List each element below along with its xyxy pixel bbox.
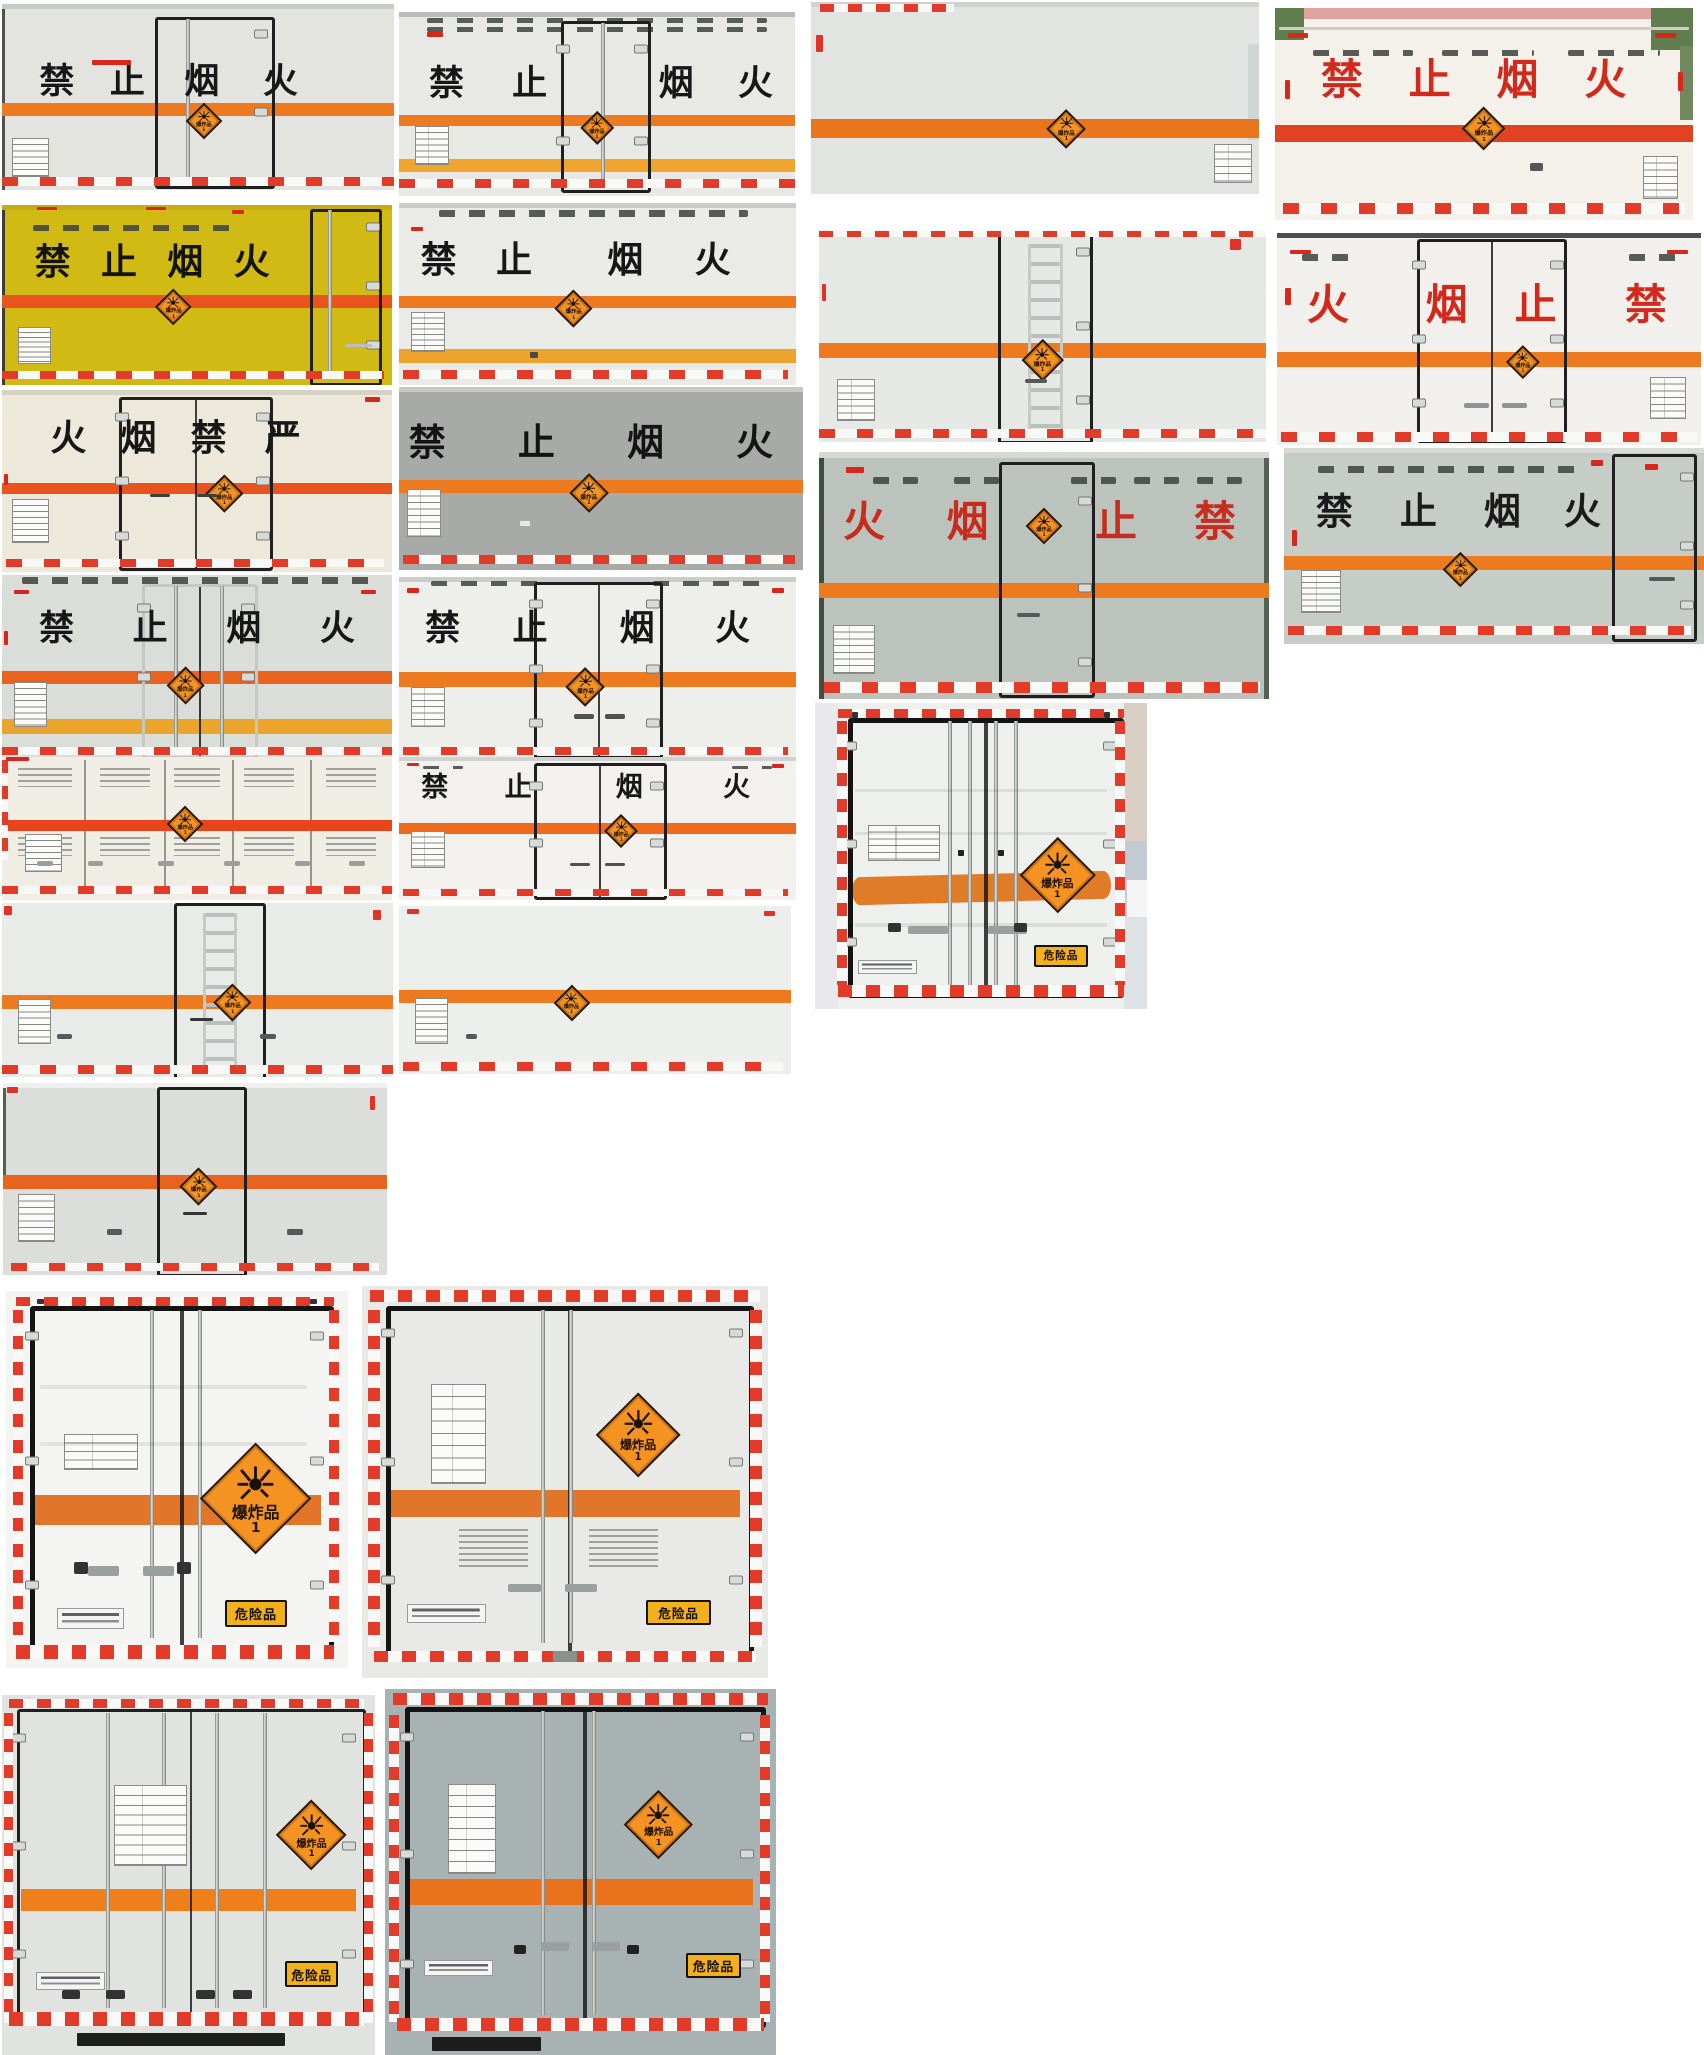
reflective-strip	[403, 1062, 783, 1070]
door-lock-rod	[1014, 721, 1018, 984]
door-lock-rod	[328, 210, 332, 377]
reflective-strip	[2, 1065, 393, 1074]
hinge	[310, 1332, 324, 1341]
photo-box-side-no-fire-white-double-door: 禁止烟火爆炸品1	[399, 577, 796, 760]
hinge	[1412, 335, 1426, 344]
explosion-burst-icon	[622, 1406, 655, 1439]
explosive-placard-icon: 爆炸品1	[553, 985, 590, 1022]
info-plate	[114, 1785, 187, 1866]
door-lock-rod	[263, 1713, 267, 2008]
panel-char: 火	[234, 245, 270, 281]
explosive-placard-icon: 爆炸品1	[185, 103, 222, 140]
door-latch	[565, 1584, 597, 1592]
panel-char: 火	[715, 612, 750, 647]
hinge	[381, 1576, 395, 1585]
placard-content: 爆炸品1	[553, 985, 590, 1022]
hinge	[1078, 497, 1092, 506]
dangerous-goods-plate: 危险品	[285, 1961, 337, 1987]
panel-char: 禁	[421, 243, 457, 279]
louver-slats	[18, 768, 73, 787]
door-latch	[605, 863, 625, 867]
placard-class-number: 1	[620, 838, 623, 843]
placard-content: 爆炸品1	[565, 667, 605, 707]
door-lock-rod	[968, 721, 972, 984]
photo-container-side-plain: 爆炸品1	[399, 906, 791, 1074]
hinge	[529, 838, 543, 847]
explosion-burst-icon	[1059, 115, 1074, 130]
explosive-placard-icon: 爆炸品1	[1506, 345, 1540, 379]
marker	[520, 521, 530, 526]
reflective-strip	[393, 1693, 768, 1706]
hinge	[1078, 583, 1092, 592]
vehicle-model-plate	[407, 1604, 486, 1624]
placard-class-number: 1	[1042, 534, 1045, 539]
vent-louvers	[873, 477, 918, 484]
explosive-placard-icon: 爆炸品1	[1046, 109, 1086, 149]
door-latch	[260, 1034, 276, 1039]
hinge	[1076, 395, 1090, 404]
reflective-strip	[11, 1263, 380, 1271]
explosion-burst-icon	[1037, 514, 1051, 528]
marker	[530, 352, 538, 357]
panel-char: 烟	[627, 424, 664, 461]
door-frame	[310, 209, 382, 385]
warning-stripe	[399, 990, 791, 1003]
info-plate	[411, 831, 445, 867]
reflective-strip	[397, 2018, 765, 2031]
warning-stripe	[399, 349, 796, 364]
panel-char: 火	[1307, 284, 1349, 326]
reflective-strip	[820, 4, 954, 12]
explosive-placard-icon: 爆炸品1	[180, 1167, 218, 1205]
explosion-burst-icon	[298, 1811, 325, 1838]
box-top-rail	[1277, 233, 1701, 238]
marker	[553, 1651, 577, 1663]
hinge	[729, 1458, 743, 1467]
placard-content: 爆炸品1	[569, 473, 609, 513]
door-latch	[88, 1566, 119, 1575]
door-latch	[183, 1212, 206, 1216]
photo-truck-rear-explosive-placard: 爆炸品1危险品	[815, 703, 1147, 1009]
placard-class-number: 1	[231, 1010, 234, 1015]
reflective-strip	[2, 886, 392, 895]
explosive-placard-icon: 爆炸品1	[604, 814, 638, 848]
panel-char: 烟	[946, 501, 988, 543]
marker	[772, 764, 784, 768]
explosive-placard-icon: 爆炸品1	[1025, 508, 1062, 545]
photo-box-side-fire-smoke-banned-gray: 火烟止禁爆炸品1	[819, 452, 1269, 699]
hinge	[241, 672, 255, 681]
panel-char: 烟	[184, 65, 219, 100]
hinge	[1550, 335, 1564, 344]
explosion-burst-icon	[1476, 114, 1493, 131]
door-frame	[1417, 239, 1567, 442]
explosion-burst-icon	[590, 116, 603, 129]
warning-stripe	[811, 119, 1259, 138]
panel-char: 禁	[1194, 501, 1236, 543]
hinge	[740, 1849, 754, 1858]
panel-char: 火	[736, 424, 773, 461]
hinge	[556, 44, 570, 53]
door-latch	[605, 714, 625, 719]
reflective-strip	[4, 1713, 13, 2023]
info-plate	[14, 682, 47, 727]
door-latch	[592, 1942, 619, 1951]
louver-slats	[100, 768, 151, 787]
background-scenery	[1264, 452, 1269, 699]
hinge	[646, 719, 660, 728]
door-latch	[908, 926, 948, 934]
box-top-rail	[399, 757, 796, 761]
background-scenery	[1124, 703, 1147, 841]
reflective-strip	[16, 1645, 334, 1658]
hinge	[400, 1849, 414, 1858]
door-latch	[1530, 163, 1543, 171]
panel-char: 烟	[120, 421, 156, 457]
marker	[958, 850, 965, 856]
photo-container-side-ladder-door-gray: 爆炸品1	[3, 1083, 387, 1275]
door-latch	[345, 344, 372, 348]
box-top-rail	[399, 203, 796, 208]
photo-container-side-corrugated-1: 爆炸品1	[811, 2, 1259, 194]
vehicle-model-plate	[57, 1608, 124, 1629]
panel-char: 烟	[1496, 59, 1538, 101]
marker	[764, 911, 776, 916]
door-latch	[888, 923, 901, 932]
marker	[7, 1087, 19, 1093]
marker	[822, 284, 826, 301]
marker	[146, 207, 166, 211]
panel-char: 火	[50, 421, 86, 457]
door-lock-rod	[150, 1310, 154, 1638]
reflective-strip	[329, 1310, 339, 1642]
marker	[852, 712, 859, 718]
info-plate	[25, 834, 62, 872]
placard-class-number: 1	[1041, 368, 1045, 374]
panel-char: 烟	[659, 67, 694, 102]
panel-char: 禁	[425, 612, 460, 647]
photo-truck-rear-explosive-3: 爆炸品1危险品	[2, 1695, 375, 2055]
marker	[361, 590, 377, 595]
panel-char: 止	[1409, 59, 1451, 101]
door-lock-rod	[106, 1713, 110, 2008]
truck-photo-collage: 禁止烟火爆炸品1禁止烟火爆炸品1爆炸品1禁止烟火爆炸品1禁止烟火爆炸品1禁止烟火…	[0, 0, 1704, 2055]
reflective-strip	[2, 747, 392, 755]
vent-louvers	[954, 477, 999, 484]
photo-truck-rear-explosive-2: 爆炸品1危险品	[362, 1286, 768, 1678]
hinge	[1680, 542, 1694, 551]
panel-char: 烟	[616, 774, 643, 801]
placard-class-number: 1	[656, 1838, 662, 1847]
marker	[6, 757, 29, 761]
door-latch	[107, 1229, 122, 1235]
hinge	[740, 1732, 754, 1741]
hinge	[729, 1329, 743, 1338]
explosion-burst-icon	[581, 480, 596, 495]
hinge	[529, 664, 543, 673]
panel-char: 禁	[409, 424, 446, 461]
hinge	[342, 1734, 356, 1743]
dangerous-goods-plate: 危险品	[225, 1600, 287, 1627]
door-latch	[158, 861, 174, 865]
placard-content: 爆炸品1	[1462, 107, 1507, 152]
hinge	[740, 1959, 754, 1968]
hinge	[381, 1458, 395, 1467]
placard-content: 爆炸品1	[276, 1799, 348, 1871]
door-lock-rod	[541, 1310, 545, 1643]
hinge	[310, 1581, 324, 1590]
photo-box-side-no-fire-gray-green-door-right: 禁止烟火爆炸品1	[1284, 448, 1704, 644]
explosive-placard-icon: 爆炸品1	[167, 806, 204, 843]
marker	[1104, 712, 1111, 718]
marker	[407, 763, 419, 767]
door-center-split	[599, 766, 601, 898]
door-latch	[295, 861, 311, 865]
marker	[4, 906, 12, 915]
marker	[1279, 27, 1689, 30]
explosive-placard-icon: 爆炸品1	[166, 667, 205, 706]
box-top-rail	[399, 387, 803, 392]
placard-class-number: 1	[1065, 137, 1068, 142]
door-center-split	[190, 1712, 192, 2014]
door-lock-rod	[569, 1310, 573, 1643]
reflective-strip	[13, 1310, 23, 1642]
photo-box-side-no-fire-yellow: 禁止烟火爆炸品1	[2, 205, 392, 385]
door-latch	[1649, 577, 1674, 581]
background-scenery	[2, 4, 5, 190]
placard-content: 爆炸品1	[1021, 339, 1063, 381]
marker	[310, 1299, 317, 1305]
marker	[855, 789, 1107, 793]
door-latch	[150, 494, 170, 498]
placard-content: 爆炸品1	[580, 110, 615, 145]
panel-char: 禁	[421, 774, 448, 801]
explosive-placard-icon: 爆炸品1	[1019, 836, 1096, 913]
marker	[92, 60, 131, 66]
placard-class-number: 1	[634, 1452, 641, 1463]
placard-content: 爆炸品1	[1025, 508, 1062, 545]
marker	[4, 631, 8, 646]
info-plate	[415, 998, 448, 1044]
placard-class-number: 1	[251, 1521, 260, 1536]
hinge	[650, 838, 664, 847]
reflective-strip	[1283, 203, 1684, 214]
explosive-placard-icon: 爆炸品1	[155, 289, 193, 327]
marker	[1230, 239, 1241, 250]
panel-char: 禁	[1625, 284, 1667, 326]
marker	[1667, 250, 1688, 254]
explosive-placard-icon: 爆炸品1	[1462, 107, 1507, 152]
placard-content: 爆炸品1	[1019, 836, 1096, 913]
vent-louvers	[1197, 477, 1242, 484]
marker	[1285, 288, 1290, 305]
hinge	[1680, 600, 1694, 609]
hinge	[1076, 248, 1090, 257]
box-top-rail	[399, 12, 795, 17]
reflective-strip	[2, 371, 384, 379]
reflective-strip	[838, 985, 1124, 997]
door-lock-rod	[592, 1711, 596, 2015]
door-latch	[224, 861, 240, 865]
hinge	[1078, 657, 1092, 666]
reflective-strip	[1115, 721, 1125, 984]
door-lock-rod	[215, 1713, 219, 2008]
info-plate	[1214, 144, 1252, 182]
door-latch	[1014, 923, 1027, 932]
reflective-strip	[403, 555, 795, 563]
marker	[365, 397, 381, 402]
placard-class-number: 1	[596, 135, 599, 140]
hinge	[1680, 473, 1694, 482]
marker	[411, 227, 423, 232]
vent-louvers	[1134, 477, 1179, 484]
door-latch	[1025, 379, 1047, 383]
marker	[427, 32, 443, 37]
placard-content: 爆炸品1	[1443, 552, 1478, 587]
door-latch	[233, 1990, 252, 1999]
marker	[14, 590, 30, 595]
placard-class-number: 1	[1459, 577, 1462, 582]
door-latch	[466, 1034, 478, 1039]
door-latch	[574, 714, 594, 719]
info-plate	[64, 1434, 138, 1470]
placard-class-number: 1	[172, 315, 175, 320]
marker	[37, 207, 57, 211]
marker	[1288, 33, 1309, 37]
explosion-burst-icon	[1516, 351, 1529, 364]
hinge	[12, 1842, 26, 1851]
marker	[40, 1442, 307, 1446]
reflective-strip	[1281, 432, 1697, 442]
hinge	[381, 1329, 395, 1338]
reflective-strip	[2, 760, 8, 860]
panel-char: 严	[265, 421, 301, 457]
panel-char: 止	[1400, 493, 1437, 530]
marker	[772, 588, 784, 593]
photo-box-side-no-fire-white-4: 禁止烟火爆炸品1	[399, 757, 796, 900]
placard-content: 爆炸品1	[595, 1392, 681, 1478]
hinge	[366, 222, 380, 231]
placard-content: 爆炸品1	[167, 806, 204, 843]
door-lock-rod	[601, 23, 605, 185]
panel-char: 火	[1584, 59, 1626, 101]
panel-char: 止	[496, 243, 532, 279]
door-latch	[1017, 613, 1040, 618]
hinge	[115, 477, 129, 486]
info-plate	[18, 999, 51, 1045]
door-lock-rod	[541, 1711, 545, 2015]
louver-slats	[244, 837, 295, 856]
door-latch	[143, 1566, 174, 1575]
photo-box-side-no-fire-silver-double-door: 禁止烟火爆炸品1	[2, 575, 392, 760]
explosive-placard-icon: 爆炸品1	[624, 1790, 694, 1860]
vent-louvers	[653, 581, 764, 586]
reflective-strip	[9, 1699, 363, 1708]
hinge	[1412, 398, 1426, 407]
hinge	[256, 477, 270, 486]
door-latch	[106, 1990, 125, 1999]
photo-container-side-ladder-door: 爆炸品1	[2, 903, 393, 1077]
door-lock-rod	[948, 721, 952, 984]
vent-louvers	[1318, 466, 1587, 474]
marker	[1292, 530, 1297, 546]
placard-class-number: 1	[184, 694, 187, 699]
explosion-burst-icon	[1034, 346, 1050, 362]
panel-char: 止	[505, 774, 532, 801]
reflective-strip	[16, 1297, 334, 1306]
hinge	[25, 1332, 39, 1341]
reflective-strip	[399, 179, 795, 187]
box-top-rail	[1284, 448, 1704, 453]
door-latch	[190, 1018, 213, 1021]
marker	[407, 909, 419, 914]
hinge	[137, 672, 151, 681]
info-plate	[1650, 377, 1686, 419]
hinge	[25, 1456, 39, 1465]
panel-char: 止	[110, 65, 145, 100]
photo-box-side-no-fire-white-2: 禁止烟火爆炸品1	[399, 12, 795, 196]
background-scenery	[3, 1083, 6, 1189]
placard-label: 爆炸品	[1041, 878, 1073, 890]
hinge	[400, 1732, 414, 1741]
panel-char: 禁	[39, 65, 74, 100]
explosion-burst-icon	[225, 989, 240, 1004]
info-plate	[415, 126, 449, 165]
explosive-placard-icon: 爆炸品1	[565, 667, 605, 707]
reflective-strip	[364, 1713, 373, 2023]
photo-container-rear-ladder-door: 爆炸品1	[819, 231, 1266, 442]
panel-char: 烟	[1426, 284, 1468, 326]
marker	[1645, 464, 1658, 470]
door-center-split	[984, 723, 988, 992]
placard-label: 爆炸品	[620, 1439, 656, 1452]
photo-box-rear-no-fire-red-text: 禁止烟火爆炸品1	[1275, 8, 1693, 220]
door-frame	[534, 763, 667, 900]
photo-box-rear-fire-smoke-banned-white: 火烟止禁爆炸品1	[1277, 233, 1701, 445]
door-latch	[287, 1229, 302, 1235]
marker	[1285, 80, 1289, 99]
panel-char: 火	[738, 67, 773, 102]
info-plate	[1643, 156, 1678, 198]
panel-char: 止	[1095, 501, 1137, 543]
panel-char: 火	[320, 612, 355, 647]
marker	[232, 210, 244, 214]
hinge	[646, 664, 660, 673]
placard-content: 爆炸品1	[1506, 345, 1540, 379]
reflective-strip	[9, 2012, 363, 2026]
explosive-placard-icon: 爆炸品1	[199, 1442, 312, 1555]
vent-louvers	[22, 577, 373, 584]
photo-truck-rear-explosive-4: 爆炸品1危险品	[385, 1689, 776, 2055]
placard-class-number: 1	[587, 501, 590, 506]
door-latch	[88, 861, 104, 865]
hinge	[12, 1734, 26, 1743]
marker	[846, 467, 864, 473]
door-latch	[508, 1584, 540, 1592]
placard-class-number: 1	[570, 1011, 573, 1016]
placard-content: 爆炸品1	[185, 103, 222, 140]
hinge	[254, 107, 268, 116]
placard-content: 爆炸品1	[214, 983, 252, 1021]
louver-slats	[174, 768, 221, 787]
background-scenery	[1127, 880, 1147, 920]
explosion-burst-icon	[645, 1801, 671, 1827]
vent-louvers	[1629, 254, 1676, 260]
reflective-strip	[838, 709, 1124, 718]
marker	[1655, 33, 1676, 37]
info-plate	[431, 1384, 486, 1484]
explosive-placard-icon: 爆炸品1	[569, 473, 609, 513]
